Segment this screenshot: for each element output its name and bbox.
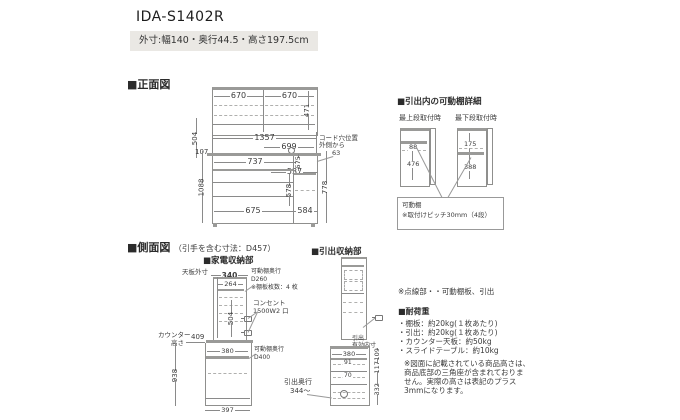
dim-label: 380: [220, 348, 234, 355]
dim-label: 332: [373, 383, 382, 395]
front-shelf-line: [294, 173, 316, 175]
outlet-note-line2: 1500W2 口: [253, 308, 289, 315]
dim-label: 380: [342, 351, 356, 358]
shelf-detail-note: 可動棚 ※取付けピッチ30mm（4段）: [397, 197, 504, 230]
drawer-dashed-line: [333, 392, 365, 393]
dim-drawer-inner1: 91: [343, 360, 353, 366]
dim-front-lower-height: 1088: [197, 151, 207, 223]
dim-front-bottom-left: 675: [214, 207, 292, 215]
dim-label: 1357: [253, 134, 275, 142]
shelf-depth-note-line2: D260: [251, 277, 267, 283]
dim-side-base-width: 397: [205, 407, 250, 414]
shelf-dashed-line: [459, 148, 483, 149]
leader-line: [186, 342, 205, 343]
dim-side-space-height: 504: [227, 300, 236, 337]
caster-mark-icon: [340, 390, 348, 398]
dim-side-inner-width: 264: [218, 281, 243, 288]
dim-label: 737: [246, 158, 263, 166]
dim-front-mid-height: 578: [285, 174, 294, 206]
drawer-shelf-dashed: [343, 312, 363, 313]
dim-drawer-inner2: 70: [343, 373, 353, 379]
dim-label: 504: [192, 131, 201, 144]
outlet-plug-icon: [375, 315, 383, 321]
side-shelf-dashed: [219, 297, 243, 298]
top-panel-label: 天板外寸: [182, 269, 208, 276]
shelf-bar: [458, 152, 484, 155]
drawer-front-line: [331, 384, 367, 385]
outer-dimensions-badge: 外寸:幅140・奥行44.5・高さ197.5cm: [130, 31, 318, 51]
dim-label: 117: [373, 361, 382, 373]
drawer-section-heading: ■引出収納部: [311, 248, 362, 257]
shelf-depth-note-line3: ※棚板枚数：4 枚: [251, 285, 298, 291]
shelf-detail-note-line2: ※取付けピッチ30mm（4段）: [402, 211, 499, 221]
slide-table-dashed-box: [344, 270, 363, 280]
dotted-line-note: ※点線部・・可動棚板、引出: [398, 288, 494, 296]
leader-line: [307, 394, 332, 398]
shelf-detail-bottom-label: 最下段取付時: [455, 115, 497, 122]
side-plinth-line: [205, 398, 250, 399]
dim-label: 471: [304, 104, 313, 117]
outlet-note-line1: コンセント: [253, 300, 286, 307]
shelf-detail-right-box: [457, 128, 487, 187]
dim-front-bottom-right: 584: [292, 207, 318, 215]
height-remark-line4: 3mmになります。: [404, 387, 468, 395]
dim-drawer-h2: 117: [373, 361, 382, 374]
front-drawer-line: [213, 182, 293, 183]
dim-counter-height: 409: [191, 334, 204, 341]
dim-side-shelf-width: 380: [207, 348, 248, 355]
dim-label: 675: [244, 207, 261, 215]
height-remark-line1: ※図面に記載されている商品高さは、: [404, 360, 530, 368]
shelf-detail-heading: ■引出内の可動棚詳細: [397, 98, 482, 107]
front-shelf-line: [213, 124, 315, 125]
dim-drawer-top-width: 380: [332, 351, 366, 358]
dim-label: 584: [296, 207, 313, 215]
page-title: IDA-S1402R: [136, 10, 224, 24]
dim-front-upper-height: 471: [303, 91, 313, 130]
side-shelf-bar: [218, 289, 244, 291]
dim-label: 778: [322, 180, 331, 193]
dim-label: 670: [230, 92, 247, 100]
dim-side-lower-height: 938: [171, 344, 180, 406]
spec-sheet: IDA-S1402R 外寸:幅140・奥行44.5・高さ197.5cm ■正面図…: [0, 0, 680, 420]
load-item: ・スライドテーブル：約10kg: [398, 347, 499, 355]
slide-table-dashed-box: [344, 281, 363, 291]
shelf-detail-left-box: [400, 128, 430, 187]
drawer-shelf-bar: [342, 265, 364, 267]
load-item: ・引出：約20kg(１枚あたり): [398, 329, 498, 337]
dim-label: 578: [285, 183, 294, 196]
cord-note-line2: 外側から: [319, 142, 345, 149]
dim-drawer-h1: 109: [373, 348, 382, 361]
load-capacity-heading: ■耐荷重: [398, 308, 430, 316]
dim-label: 938: [171, 368, 180, 381]
dim-shelf-bottom-upper: 175: [463, 141, 477, 148]
drawer-dashed-line: [333, 398, 365, 399]
dim-label: 504: [227, 312, 236, 325]
front-foot: [213, 223, 217, 227]
dim-shelf-top-lower: 476: [406, 161, 420, 168]
dim-label: 1088: [198, 178, 207, 196]
dim-front-counter-width: 737: [214, 158, 296, 166]
shelf-depth-note-line1: 可動棚奥行: [251, 269, 281, 275]
height-remark-line2: 商品底部の三角座が含まれておりま: [404, 369, 524, 377]
dim-label: 670: [281, 92, 298, 100]
front-hutch-divider: [263, 90, 264, 132]
front-shelf-dashed-line: [214, 115, 314, 116]
front-shelf-dashed-line: [214, 105, 314, 106]
dim-front-top-left: 670: [214, 92, 263, 100]
lower-shelf-note-line2: D400: [254, 355, 270, 361]
front-view-heading: ■正面図: [127, 79, 170, 90]
lower-shelf-note-line1: 可動棚奥行: [254, 347, 284, 353]
front-side-line: [212, 132, 213, 153]
shelf-detail-right-side: [487, 128, 493, 185]
side-view-heading-sub: （引手を含む寸法：D457）: [174, 244, 275, 253]
counter-label-line1: カウンター: [158, 332, 184, 339]
front-drawer-line: [213, 169, 293, 171]
drawer-shelf-line: [342, 293, 364, 294]
load-item: ・棚板：約20kg(１枚あたり): [398, 320, 498, 328]
dim-drawer-h3: 332: [373, 374, 382, 405]
front-side-line: [316, 132, 317, 153]
side-shelf-bar: [206, 356, 249, 359]
dim-label: 397: [220, 407, 234, 414]
drawer-depth-note-line1: 引出奥行: [284, 379, 312, 386]
load-item: ・カウンター天板：約50kg: [398, 338, 492, 346]
shelf-detail-top-label: 最上段取付時: [399, 115, 441, 122]
side-view-heading-main: ■側面図: [127, 241, 170, 254]
front-drawer-line: [213, 196, 293, 197]
dim-label: 109: [373, 348, 382, 360]
drawer-counter-band: [330, 346, 368, 349]
drawer-shelf-dashed: [343, 302, 363, 303]
appliance-section-heading: ■家電収納部: [203, 257, 254, 266]
height-remark-line3: せん。実際の高さは表記のプラス: [404, 378, 516, 386]
front-foot: [311, 223, 315, 227]
dim-front-inner-width: 1357: [213, 134, 316, 142]
dim-label: 264: [223, 281, 237, 288]
side-shelf-dashed: [208, 373, 247, 374]
dim-front-right-height: 778: [321, 151, 331, 223]
shelf-detail-note-line1: 可動棚: [402, 201, 499, 211]
front-shelf-dashed-line: [295, 190, 315, 191]
side-view-heading: ■側面図 （引手を含む寸法：D457）: [127, 242, 275, 253]
